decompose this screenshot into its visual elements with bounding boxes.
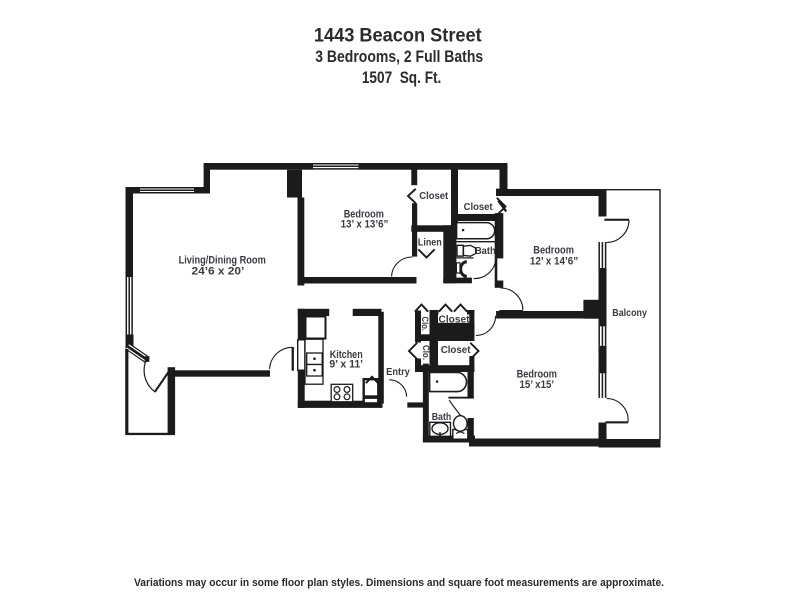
svg-text:Bath: Bath [432,412,452,423]
svg-text:Closet: Closet [441,345,471,356]
svg-text:9’ x 11’: 9’ x 11’ [329,358,363,370]
svg-text:Balcony: Balcony [612,308,647,319]
svg-text:Linen: Linen [418,237,442,248]
svg-text:13’ x 13’6”: 13’ x 13’6” [341,219,389,231]
svg-text:Closet: Closet [439,314,471,325]
svg-text:1443 Beacon Street: 1443 Beacon Street [314,26,482,47]
svg-text:3 Bedrooms, 2 Full Baths: 3 Bedrooms, 2 Full Baths [315,47,483,66]
svg-text:Closet: Closet [419,191,448,202]
svg-text:Variations may occur in some f: Variations may occur in some floor plan … [134,577,664,589]
svg-text:12’ x 14’6”: 12’ x 14’6” [530,255,578,267]
svg-text:Clo.: Clo. [419,317,430,332]
svg-text:Bath: Bath [475,246,496,257]
svg-text:Clo.: Clo. [420,345,431,360]
svg-text:15’ x15’: 15’ x15’ [520,379,555,391]
svg-text:24’6 x 20’: 24’6 x 20’ [192,266,245,278]
svg-text:1507 Sq. Ft.: 1507 Sq. Ft. [362,68,442,87]
svg-text:Closet: Closet [464,202,493,213]
svg-text:Entry: Entry [386,367,410,378]
